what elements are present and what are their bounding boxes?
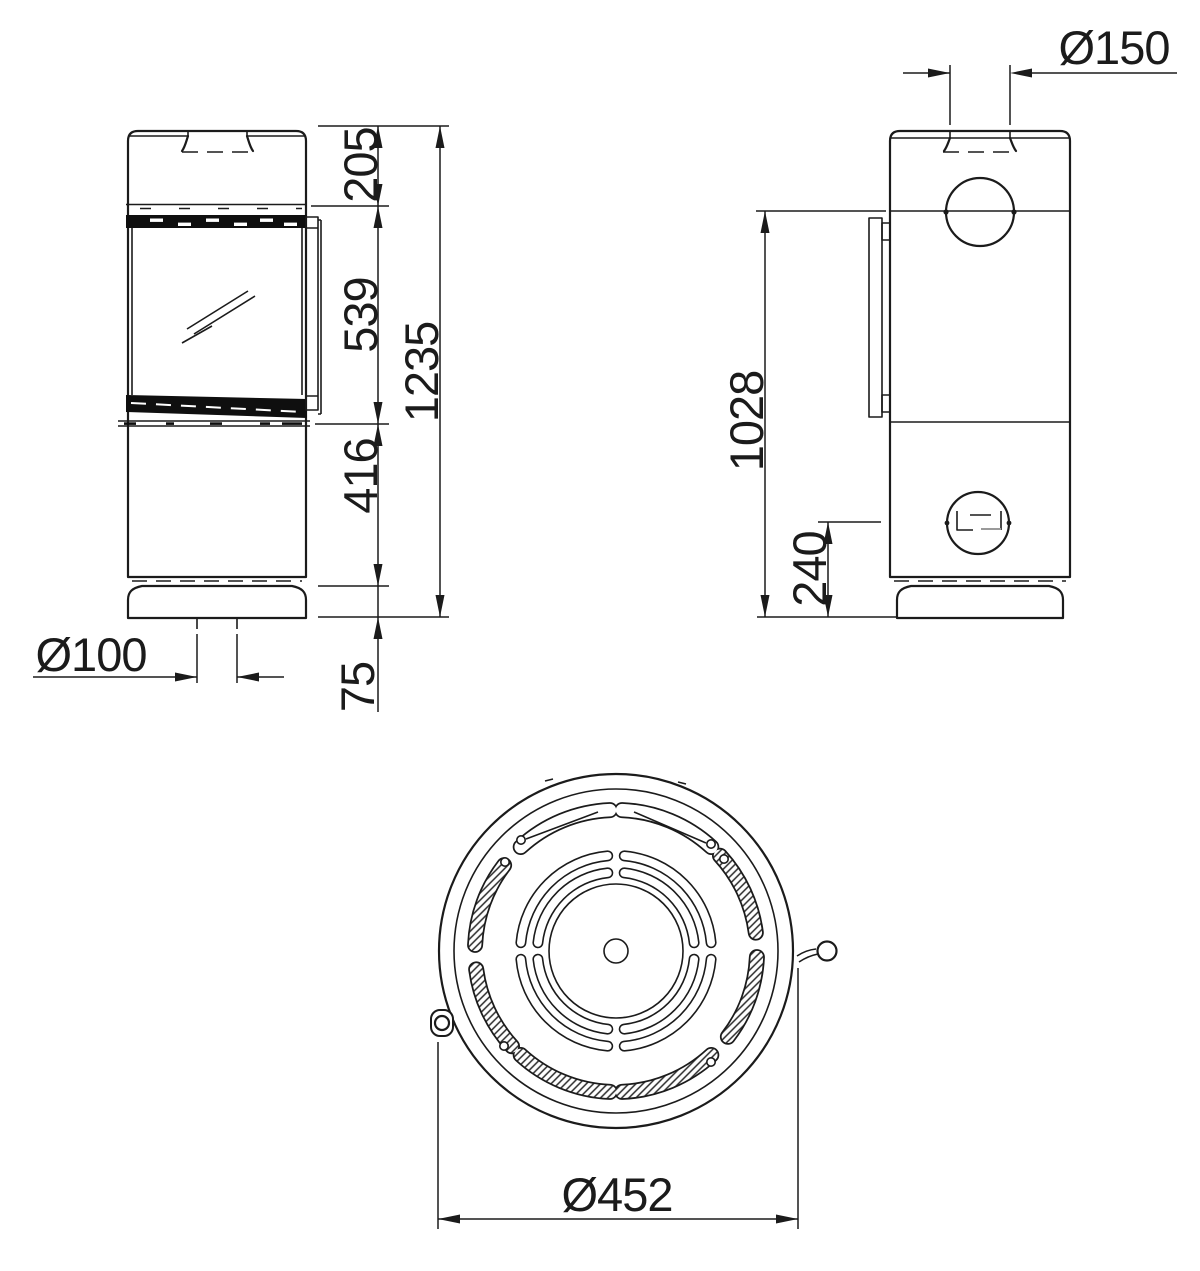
side-door-profile (869, 218, 890, 417)
top-inner-rim (454, 789, 778, 1113)
dim-label-floor-flue-diameter: Ø100 (36, 628, 147, 681)
front-dimensions: 205 539 416 75 1235 Ø100 (33, 126, 449, 712)
side-flue-dimension: Ø150 (903, 21, 1177, 125)
dim-label-lower-section: 416 (334, 438, 387, 513)
front-body-outline (128, 131, 306, 577)
front-glass (132, 228, 302, 395)
front-base-plinth (128, 586, 306, 618)
top-hinge-knob (431, 1010, 453, 1036)
side-base-plinth (897, 586, 1063, 618)
side-rear-flue-outlet (943, 178, 1016, 246)
drawing-canvas: 205 539 416 75 1235 Ø100 (0, 0, 1200, 1271)
front-door-sill (118, 421, 310, 426)
dim-label-top-section: 205 (334, 127, 387, 202)
top-outer-vent-slots (475, 810, 757, 1092)
side-dimensions: Ø150 1028 240 (720, 21, 1177, 617)
top-door-handle (797, 942, 837, 963)
top-hob-circle (549, 884, 683, 1018)
front-door-hinge-strip (306, 217, 321, 414)
side-view (869, 131, 1070, 618)
side-flue-collar (943, 131, 1017, 152)
top-outer-rim (439, 774, 793, 1128)
dim-label-door-height: 539 (334, 277, 387, 352)
front-view (118, 131, 321, 629)
stove-dimension-drawing: 205 539 416 75 1235 Ø100 (0, 0, 1200, 1271)
side-rear-lower-outlet (945, 492, 1012, 554)
dim-label-flue-diameter: Ø150 (1059, 21, 1170, 74)
top-view (431, 774, 837, 1128)
front-floor-flue-dimension: Ø100 (33, 628, 284, 683)
dim-label-total-height: 1235 (395, 322, 448, 423)
side-body-outline (890, 131, 1070, 577)
dim-label-base-height: 75 (331, 662, 384, 712)
dim-label-lower-outlet-height: 240 (783, 531, 836, 606)
front-flue-collar (182, 131, 253, 152)
top-center-knob (604, 939, 628, 963)
dim-label-rear-outlet-height: 1028 (720, 371, 773, 472)
dim-label-body-diameter: Ø452 (562, 1168, 673, 1221)
